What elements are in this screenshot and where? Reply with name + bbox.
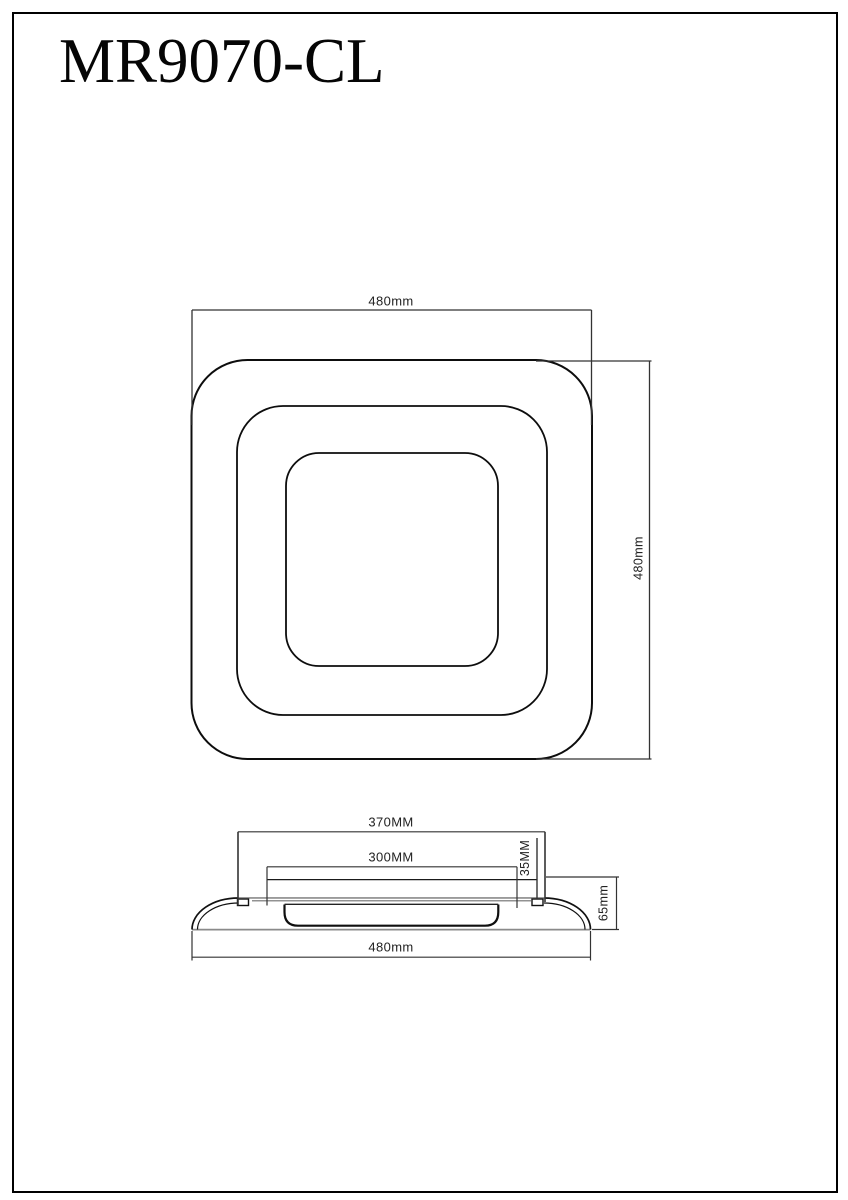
technical-drawing-canvas: 480mm 480mm bbox=[0, 0, 848, 1200]
dim-label-65: 65mm bbox=[597, 885, 611, 921]
dome-arc-left-outer bbox=[192, 898, 239, 930]
dim-label-right-height: 480mm bbox=[632, 536, 646, 580]
inner-ring-outline bbox=[286, 453, 498, 666]
dim-label-370: 370MM bbox=[368, 815, 413, 830]
dome-arc-right-inner bbox=[544, 903, 585, 930]
mounting-clip-right bbox=[532, 899, 543, 906]
dim-label-base-480: 480mm bbox=[368, 940, 413, 955]
dim-label-35: 35MM bbox=[518, 840, 532, 876]
drawing-sheet: MR9070-CL 480mm 480mm bbox=[0, 0, 848, 1200]
page-border bbox=[13, 13, 837, 1192]
dim-label-300: 300MM bbox=[368, 850, 413, 865]
dome-arc-left-inner bbox=[198, 903, 239, 930]
top-view: 480mm 480mm bbox=[192, 294, 652, 760]
mounting-clip-left bbox=[238, 899, 249, 906]
dim-label-top-width: 480mm bbox=[368, 294, 413, 309]
diffuser-outline bbox=[285, 905, 499, 926]
side-view: 370MM 300MM 35MM 65mm 480mm bbox=[192, 815, 619, 961]
outer-ring-outline bbox=[192, 360, 593, 759]
dome-arc-right-outer bbox=[544, 898, 591, 930]
